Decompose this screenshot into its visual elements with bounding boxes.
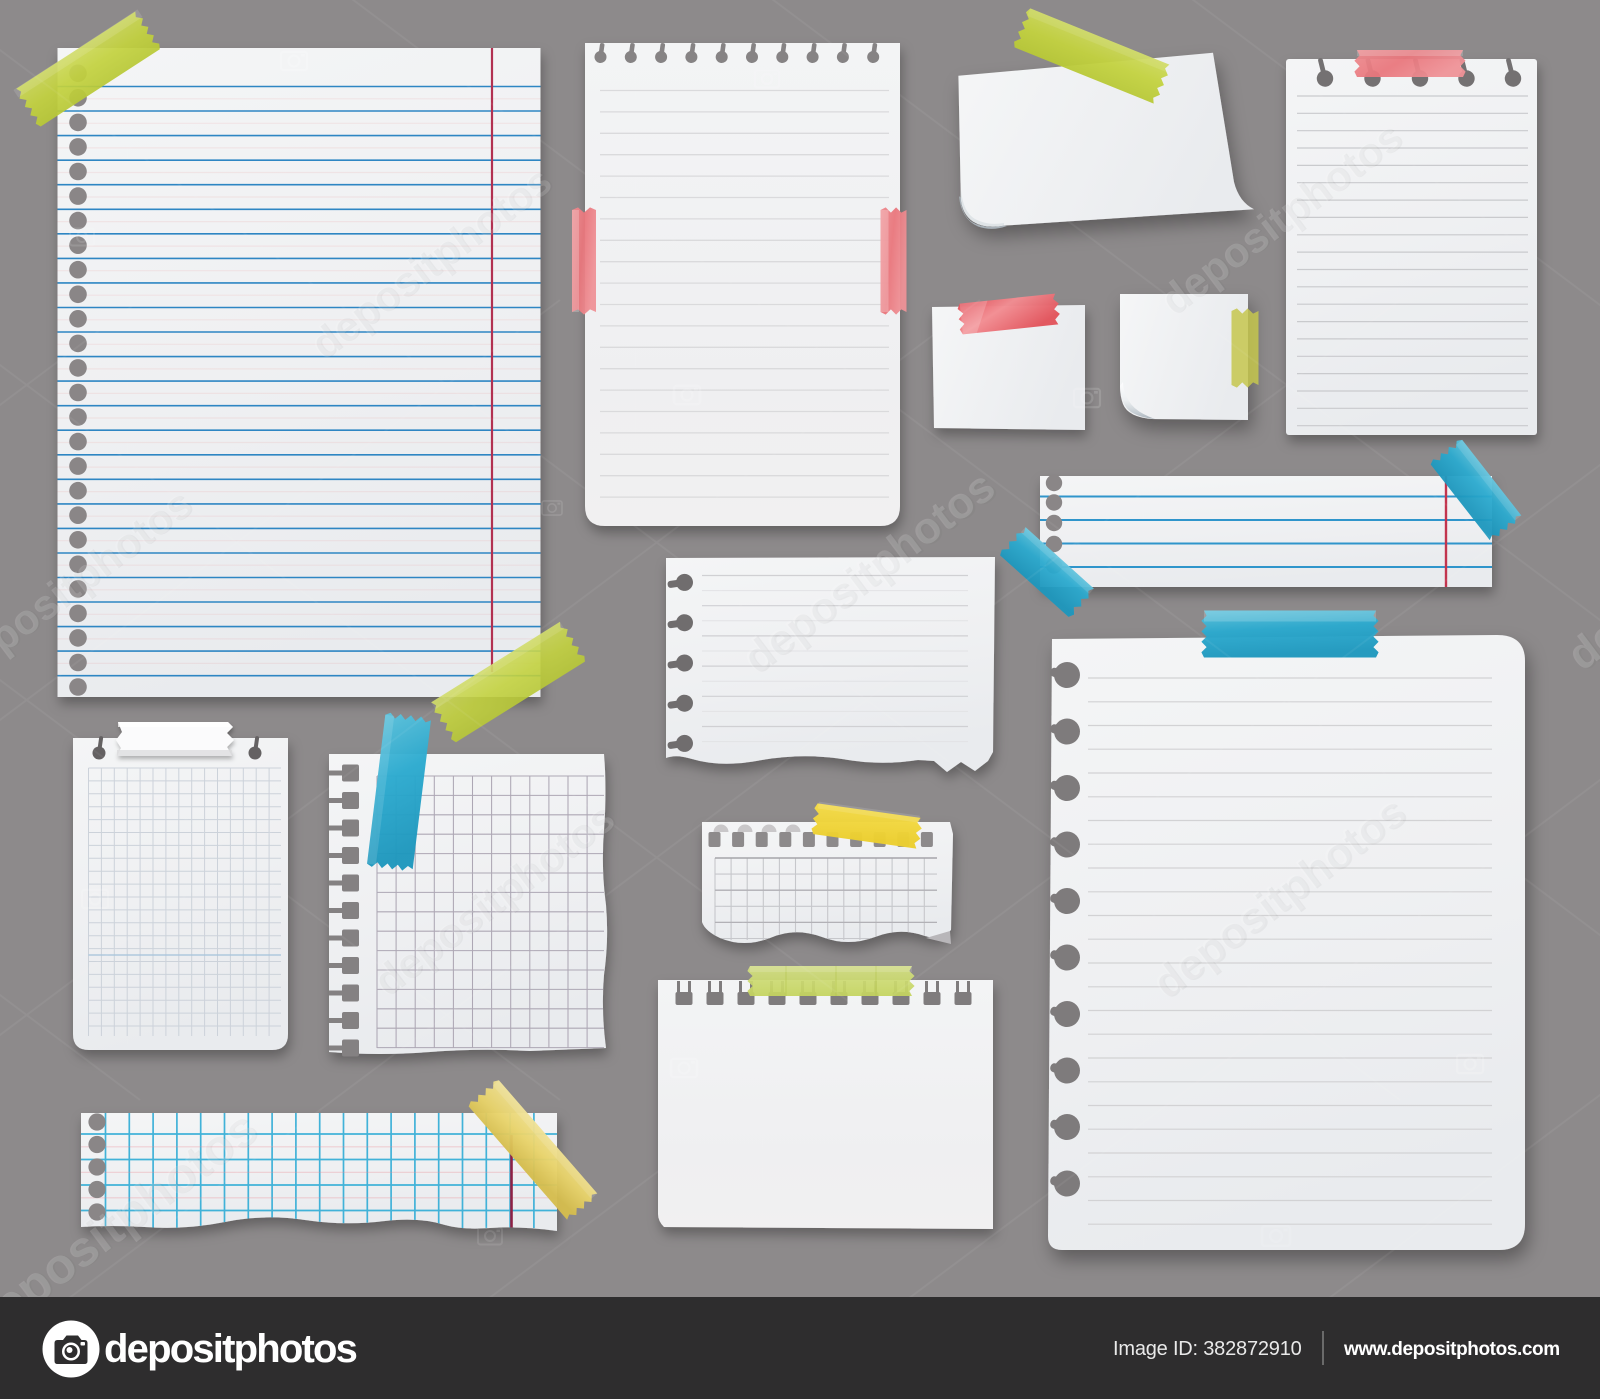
svg-text:www.depositphotos.com: www.depositphotos.com (1343, 1339, 1560, 1360)
svg-text:Image ID: 382872910: Image ID: 382872910 (1113, 1338, 1302, 1360)
svg-text:depositphotos: depositphotos (104, 1327, 357, 1371)
